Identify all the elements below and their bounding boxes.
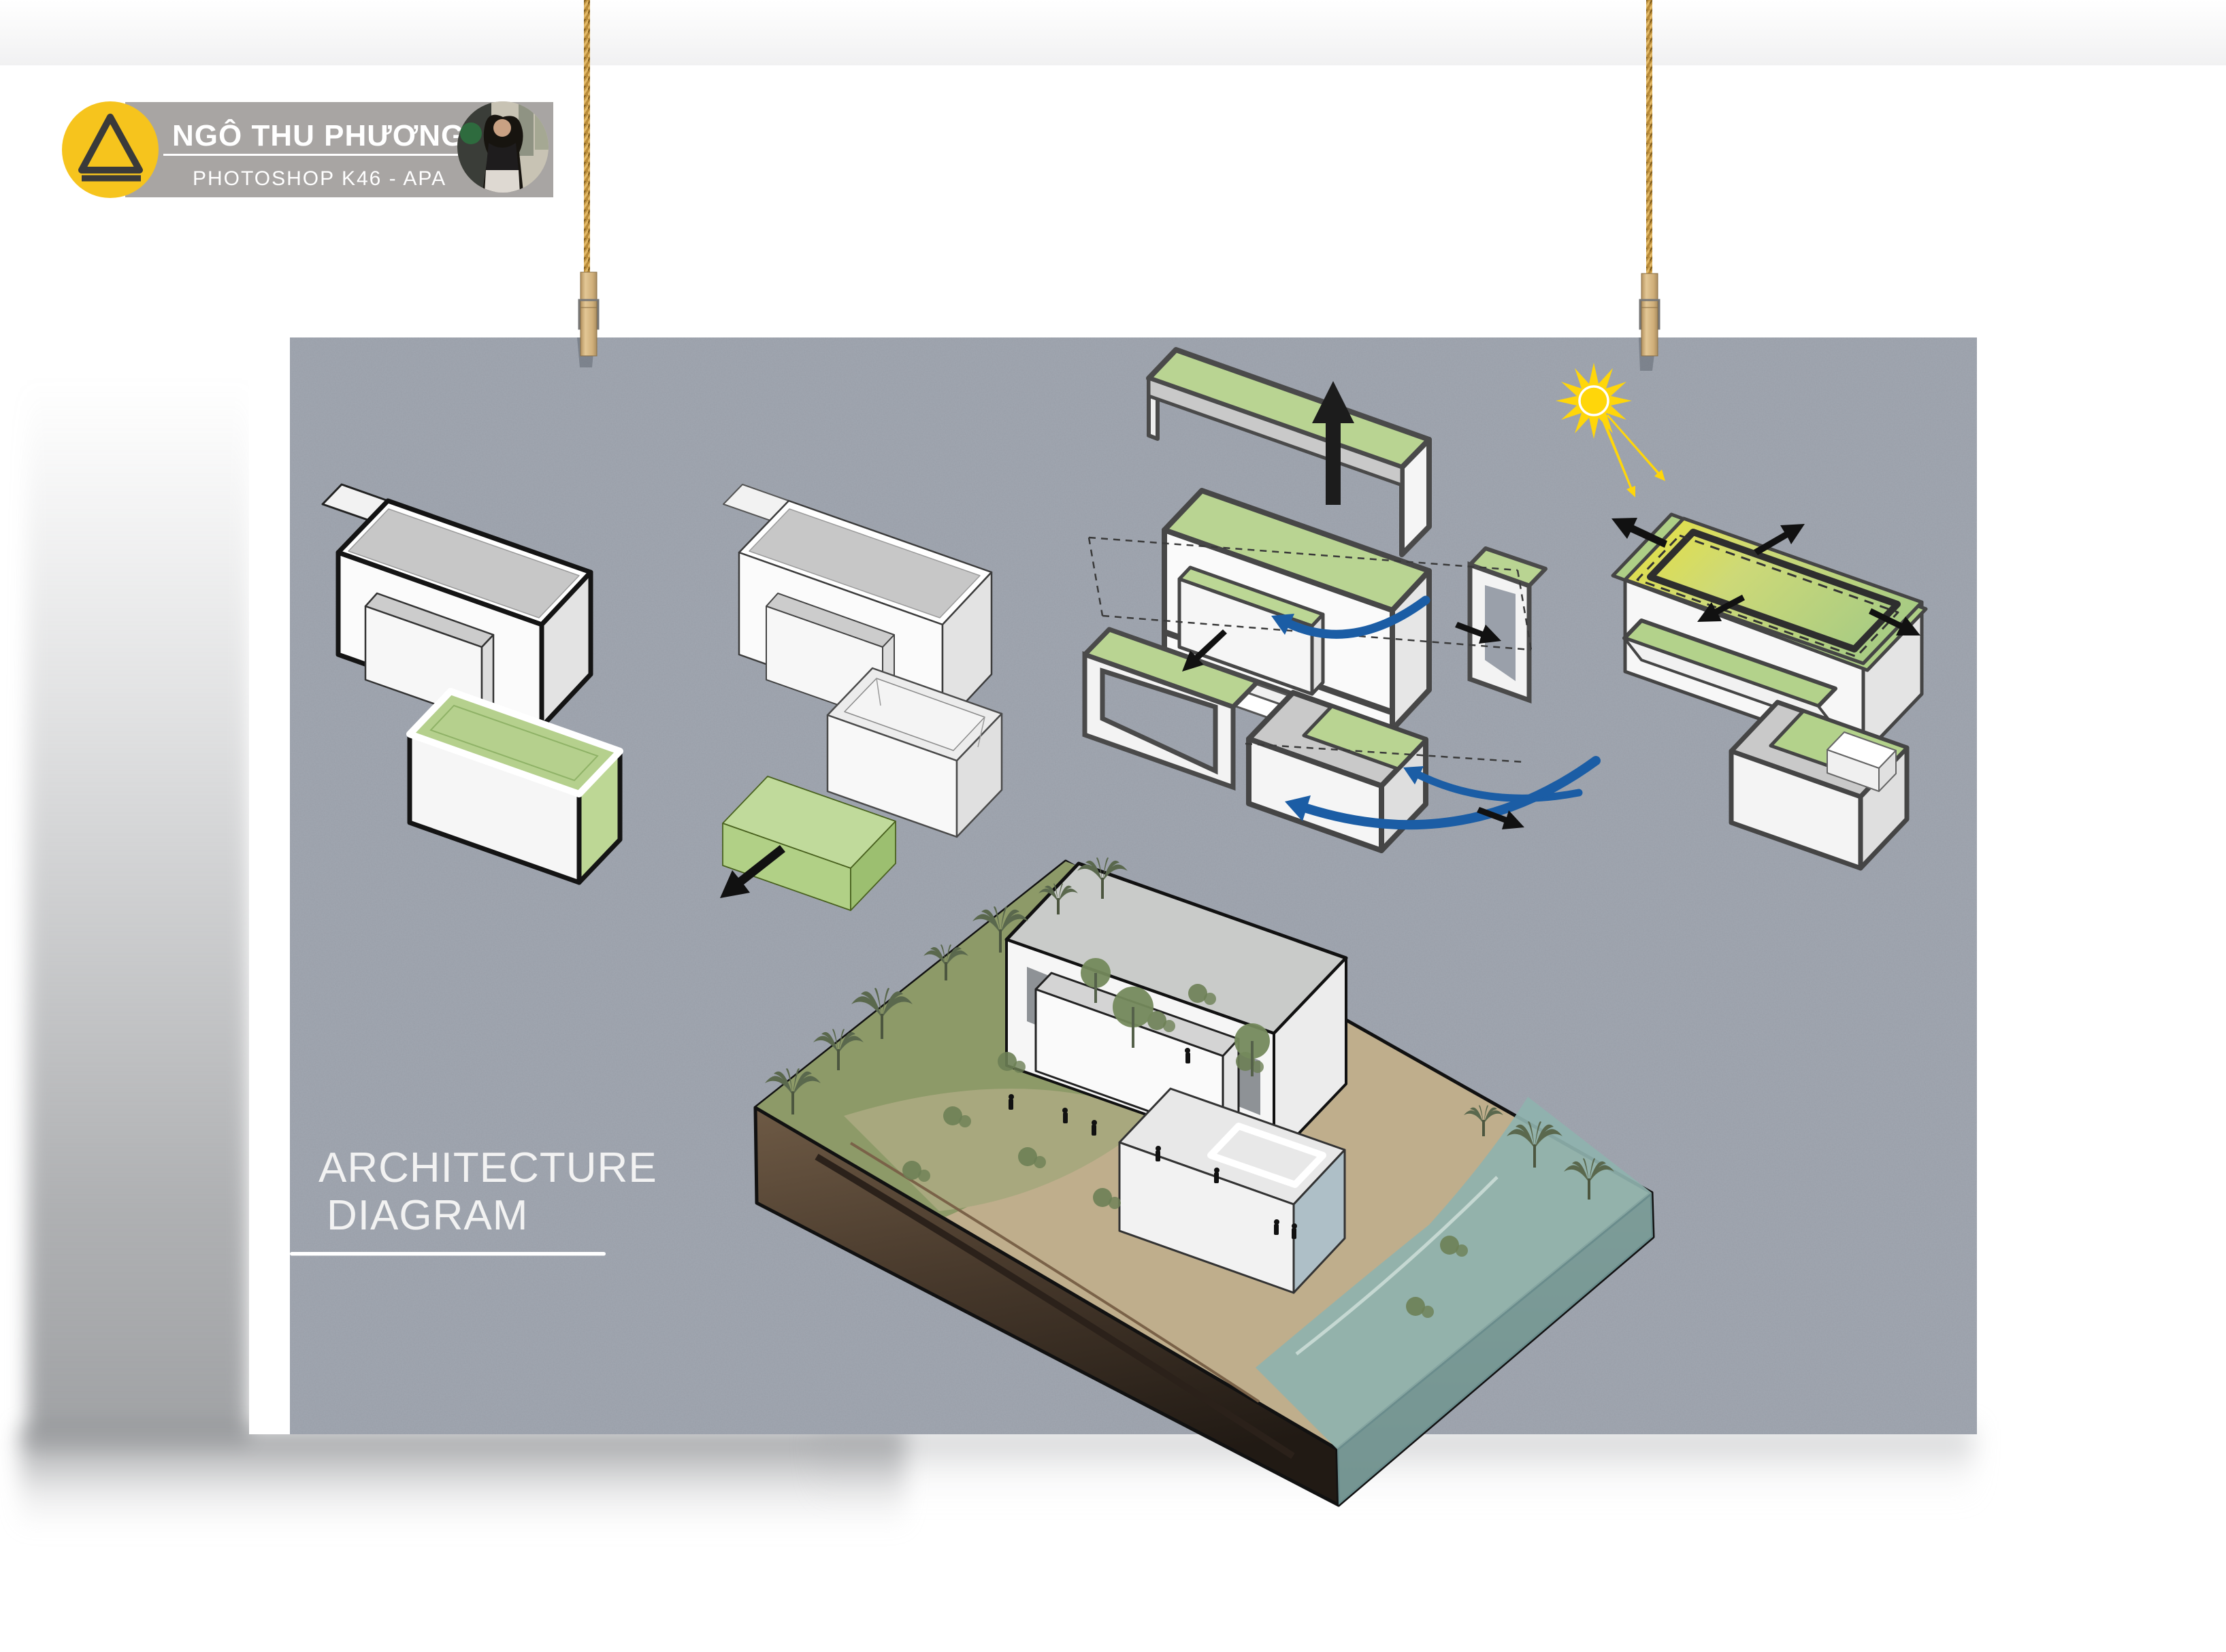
svg-text:DIAGRAM: DIAGRAM (327, 1192, 528, 1239)
svg-text:PHOTOSHOP K46 - APA: PHOTOSHOP K46 - APA (193, 167, 446, 190)
svg-text:ARCHITECTURE: ARCHITECTURE (318, 1144, 657, 1191)
svg-text:NGÔ THU PHƯƠNG: NGÔ THU PHƯƠNG (172, 118, 465, 152)
